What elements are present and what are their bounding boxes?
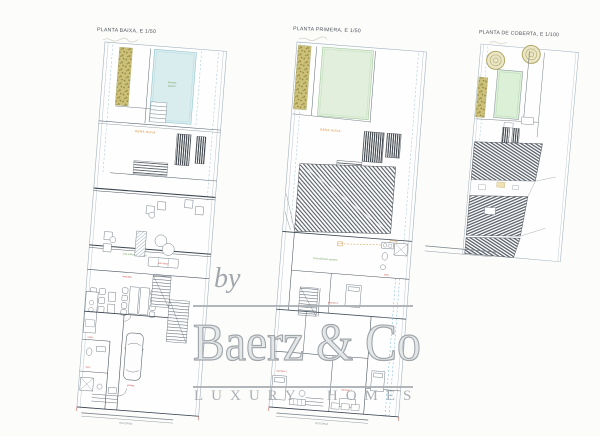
title-planta-baixa: PLANTA BAIXA, E 1/50 xyxy=(97,27,156,35)
plan-planta-coberta xyxy=(425,38,579,263)
pool-terrace: terrassa piscina xyxy=(149,49,196,125)
floorplan-drawing: terrassa piscina OBRA NOVA xyxy=(0,0,600,436)
sloped-roof-hatch xyxy=(294,160,395,239)
floorplan-sheet: terrassa piscina OBRA NOVA xyxy=(0,0,600,436)
staircase-secondary xyxy=(166,300,189,343)
bed-1 xyxy=(345,285,362,308)
reforma-label: REFORMA xyxy=(315,421,329,426)
plan-titles: PLANTA BAIXA, E 1/50 PLANTA PRIMERA, E 1… xyxy=(97,26,559,38)
staircase-main xyxy=(151,275,171,307)
reforma-label: REFORMA xyxy=(119,421,133,426)
bed-2 xyxy=(271,375,287,400)
plan-planta-primera: OBRA NOVA xyxy=(268,42,427,431)
plan-planta-baixa: terrassa piscina OBRA NOVA xyxy=(76,42,227,431)
roof-terrace-lawn xyxy=(317,47,373,120)
pool xyxy=(494,70,523,120)
pool-note-2: piscina xyxy=(168,84,176,88)
pool-stairs xyxy=(150,102,167,123)
title-planta-primera: PLANTA PRIMERA, E 1/50 xyxy=(293,26,361,34)
title-planta-coberta: PLANTA DE COBERTA, E 1/100 xyxy=(479,30,559,39)
